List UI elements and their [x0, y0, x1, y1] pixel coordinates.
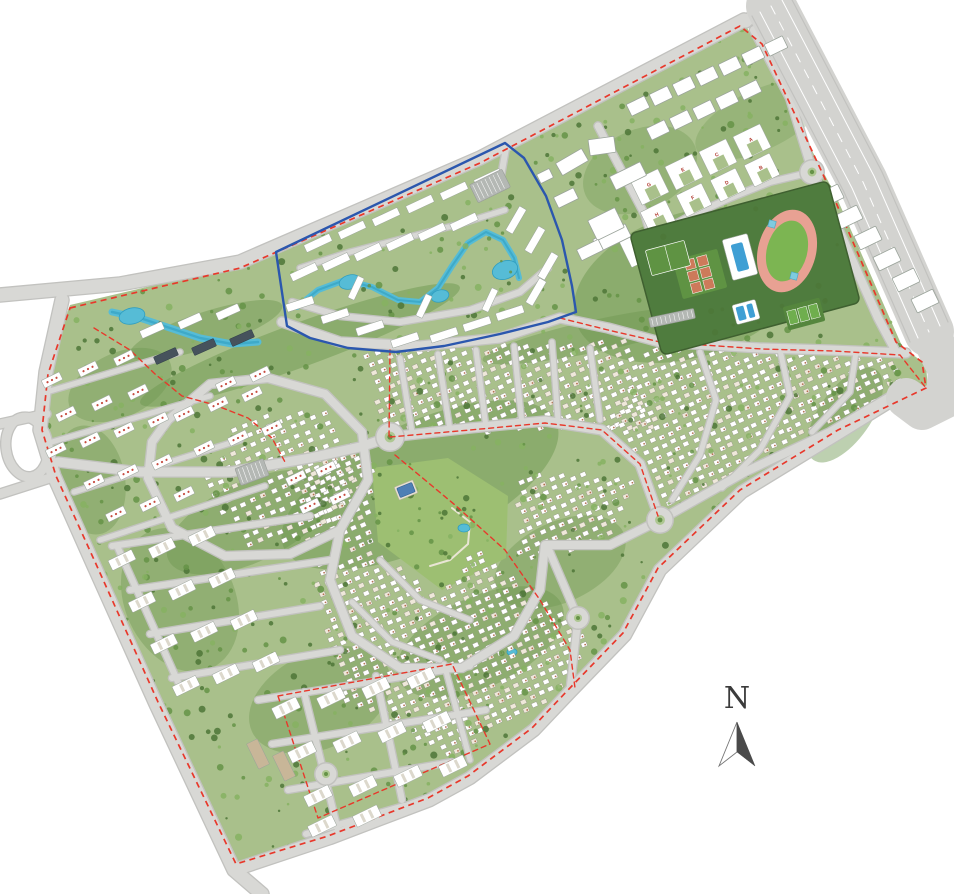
compass-arrow-left-half — [719, 722, 737, 766]
compass-arrow-right-half — [737, 722, 755, 766]
master-plan-canvas: ACEGBDFH N — [0, 0, 954, 894]
north-label: N — [724, 681, 750, 716]
master-plan-map: ACEGBDFH N — [0, 0, 954, 894]
building — [588, 136, 616, 155]
north-arrow: N — [719, 681, 755, 766]
